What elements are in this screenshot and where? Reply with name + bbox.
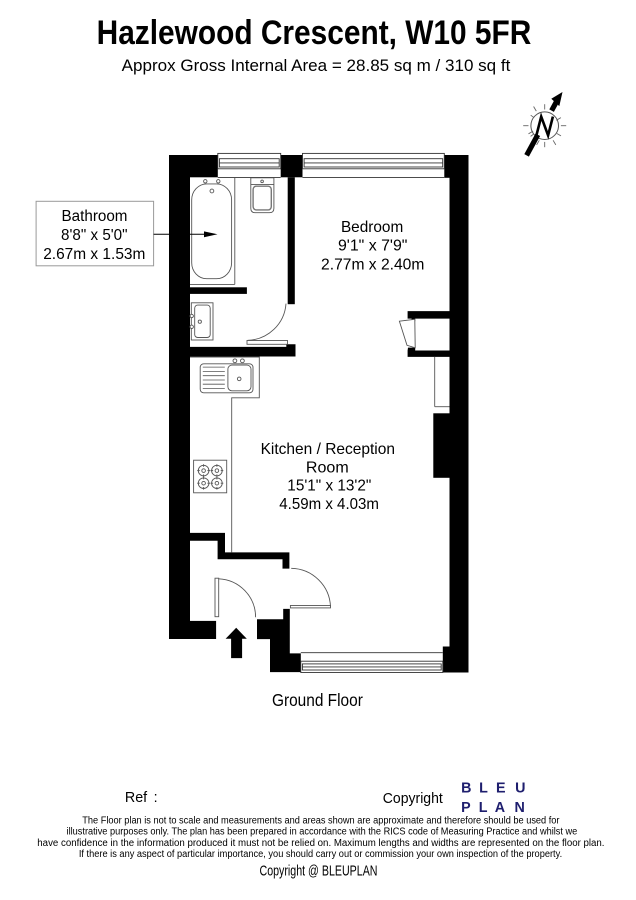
svg-text:B: B xyxy=(461,780,471,796)
svg-text:The Floor plan is not to scale: The Floor plan is not to scale and measu… xyxy=(82,816,560,827)
svg-text:Hazlewood Crescent, W10 5FR: Hazlewood Crescent, W10 5FR xyxy=(97,14,532,52)
svg-text:8'8" x 5'0": 8'8" x 5'0" xyxy=(61,227,128,244)
svg-text:Copyright @ BLEUPLAN: Copyright @ BLEUPLAN xyxy=(260,863,378,879)
svg-text:N: N xyxy=(515,800,525,816)
svg-text:have confidence in the informa: have confidence in the information produ… xyxy=(37,838,604,849)
svg-text:4.59m x 4.03m: 4.59m x 4.03m xyxy=(279,496,379,513)
svg-text:L: L xyxy=(479,780,488,796)
svg-text:Copyright: Copyright xyxy=(383,791,443,807)
svg-text:Bedroom: Bedroom xyxy=(341,219,403,236)
svg-text:15'1" x 13'2": 15'1" x 13'2" xyxy=(287,477,371,494)
svg-text:Ref: Ref xyxy=(125,790,147,806)
svg-text:L: L xyxy=(479,800,488,816)
svg-text:Approx Gross Internal Area = 2: Approx Gross Internal Area = 28.85 sq m … xyxy=(122,56,511,75)
svg-text:E: E xyxy=(496,780,506,796)
svg-text:2.67m x 1.53m: 2.67m x 1.53m xyxy=(43,246,145,263)
svg-text:Kitchen / Reception: Kitchen / Reception xyxy=(261,441,395,458)
svg-text:A: A xyxy=(495,800,505,816)
svg-text:9'1" x 7'9": 9'1" x 7'9" xyxy=(338,237,408,254)
svg-text::: : xyxy=(154,790,158,806)
svg-text:illustrative purposes only. Th: illustrative purposes only. The plan has… xyxy=(67,827,578,838)
svg-text:2.77m x 2.40m: 2.77m x 2.40m xyxy=(321,257,424,274)
svg-text:U: U xyxy=(515,780,525,796)
svg-text:If there is any aspect of part: If there is any aspect of particular imp… xyxy=(79,849,562,860)
svg-text:Ground Floor: Ground Floor xyxy=(272,690,363,710)
svg-text:Bathroom: Bathroom xyxy=(62,208,128,225)
svg-text:Room: Room xyxy=(306,459,349,476)
svg-text:P: P xyxy=(461,800,471,816)
